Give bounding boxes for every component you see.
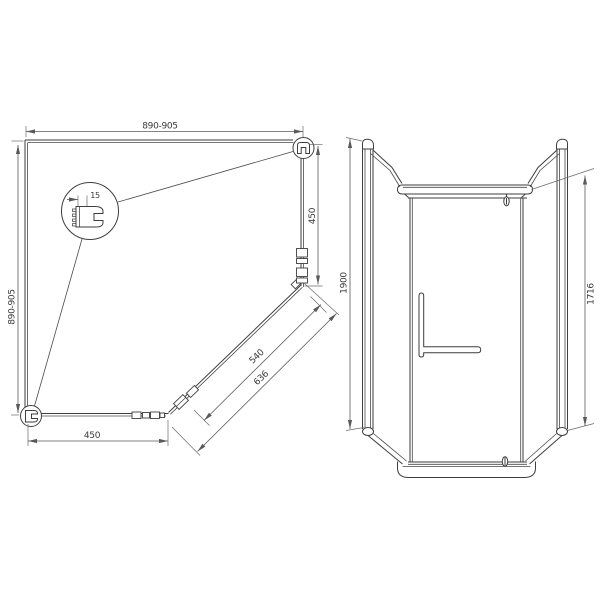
corner-profile-circle-bottom-left [21,406,42,427]
wall-profile-left [363,139,374,435]
door-knob-bottom[interactable] [502,457,507,467]
detail-leader-line [118,152,293,203]
technical-drawing-canvas: 15 890-905 890-905 450 [0,0,600,600]
profile-top-cap [557,139,568,149]
bottom-rail-connectors [368,433,562,464]
door-knob-top[interactable] [504,194,509,206]
front-view: 1900 1716 [340,138,597,478]
door-roller-block [186,386,198,398]
profile-detail-circle: 15 [35,152,294,407]
dim-label-left-depth: 890-905 [8,289,18,325]
drawing-sheet: 15 890-905 890-905 450 [0,0,600,600]
bottom-guide-blocks [132,412,165,419]
door-roller-block [174,395,189,410]
profile-foot [363,428,374,436]
dim-label-1900: 1900 [340,272,350,294]
dim-label-bottom-450: 450 [84,431,101,441]
dim-left-depth: 890-905 [8,141,24,415]
plan-door-diagonal [169,278,303,414]
top-rail-bar [398,185,533,198]
dim-door-height-1716: 1716 [532,169,597,431]
dim-label-right-450: 450 [308,207,318,224]
profile-top-cap [363,139,374,149]
dim-label-top-width: 890-905 [142,122,178,132]
door-panel [408,198,527,464]
dim-top-width: 890-905 [26,122,303,138]
dim-label-540: 540 [248,347,267,366]
door-handle[interactable] [419,293,481,357]
dim-label-1716: 1716 [587,283,597,305]
corner-profile-circle-top-right [293,138,314,159]
dim-bottom-450: 450 [28,420,168,446]
top-rail-connectors [371,151,560,188]
dim-label-636: 636 [252,369,271,388]
plan-view: 15 890-905 890-905 450 [8,122,340,456]
dim-label-15: 15 [90,191,100,200]
detail-leader-line [35,239,83,406]
dim-door-540: 540 [194,297,327,426]
profile-foot [557,428,568,436]
dim-right-450: 450 [305,145,323,287]
wall-hinge-blocks [297,249,308,284]
wall-profile-right [557,139,568,435]
dim-total-height-1900: 1900 [340,138,365,431]
